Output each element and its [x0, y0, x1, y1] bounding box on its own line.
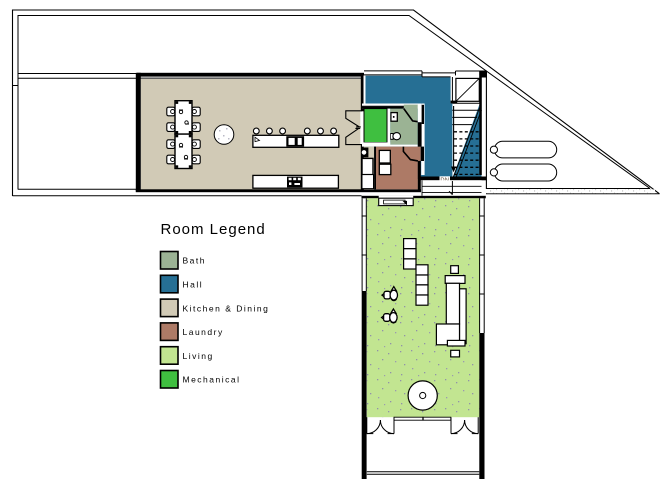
svg-text:Living: Living	[183, 351, 214, 361]
svg-text:Room Legend: Room Legend	[161, 221, 266, 238]
svg-text:Laundry: Laundry	[183, 327, 224, 337]
svg-text:Bath: Bath	[183, 256, 207, 266]
svg-text:Hall: Hall	[183, 280, 204, 290]
svg-text:Mechanical: Mechanical	[183, 375, 241, 385]
svg-text:Kitchen & Dining: Kitchen & Dining	[183, 303, 270, 313]
